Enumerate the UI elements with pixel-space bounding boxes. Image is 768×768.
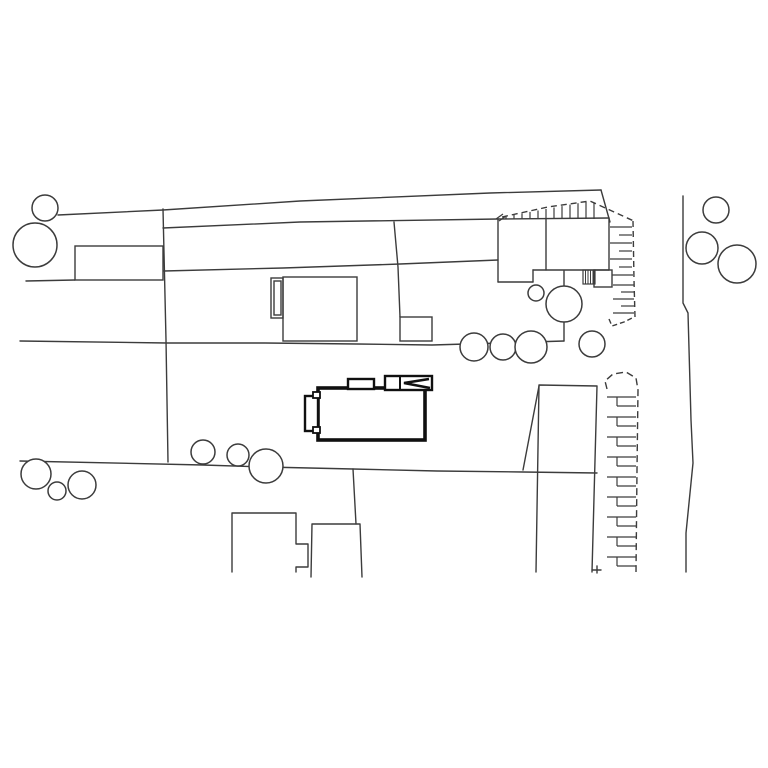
tree bbox=[490, 334, 516, 360]
site-plan-page bbox=[0, 0, 768, 768]
building-outline bbox=[232, 513, 308, 572]
building-outline bbox=[311, 524, 362, 577]
tree bbox=[528, 285, 544, 301]
dashed-edges-layer bbox=[502, 201, 638, 572]
building bbox=[274, 281, 281, 315]
tree bbox=[191, 440, 215, 464]
tree bbox=[32, 195, 58, 221]
tree bbox=[249, 449, 283, 483]
subject-roof-dormer bbox=[348, 379, 374, 389]
tree bbox=[227, 444, 249, 466]
boundary-line bbox=[523, 386, 539, 470]
subject-porch-notch-top bbox=[313, 392, 320, 398]
tree bbox=[460, 333, 488, 361]
boundary-line bbox=[20, 461, 597, 473]
building bbox=[400, 317, 432, 341]
tree bbox=[703, 197, 729, 223]
stairs-ticks-layer bbox=[496, 202, 636, 566]
subject-porch-notch-bottom bbox=[313, 427, 320, 433]
tree bbox=[68, 471, 96, 499]
tree bbox=[686, 232, 718, 264]
dashed-boundary bbox=[605, 372, 638, 572]
boundary-line bbox=[58, 190, 601, 215]
stairs-hatch-layer bbox=[583, 270, 595, 284]
building bbox=[75, 246, 163, 280]
boundary-line bbox=[26, 280, 75, 281]
boundary-line bbox=[353, 469, 356, 524]
tree bbox=[515, 331, 547, 363]
tree bbox=[48, 482, 66, 500]
building bbox=[594, 270, 612, 287]
boundary-line bbox=[164, 260, 498, 271]
dashed-boundary bbox=[609, 317, 634, 326]
tree bbox=[13, 223, 57, 267]
subject-porch bbox=[305, 396, 318, 431]
subject-building-main bbox=[318, 388, 425, 440]
dashed-boundary bbox=[633, 221, 635, 317]
tree bbox=[546, 286, 582, 322]
subject-building-layer bbox=[305, 376, 432, 440]
building bbox=[283, 277, 357, 341]
boundary-line bbox=[394, 222, 400, 317]
boundary-line bbox=[163, 219, 498, 228]
trees-layer bbox=[13, 195, 756, 500]
tree bbox=[21, 459, 51, 489]
site-plan-svg bbox=[0, 0, 768, 768]
tree bbox=[718, 245, 756, 283]
building-outline bbox=[536, 385, 597, 572]
boundary-line bbox=[163, 209, 168, 462]
tree bbox=[579, 331, 605, 357]
